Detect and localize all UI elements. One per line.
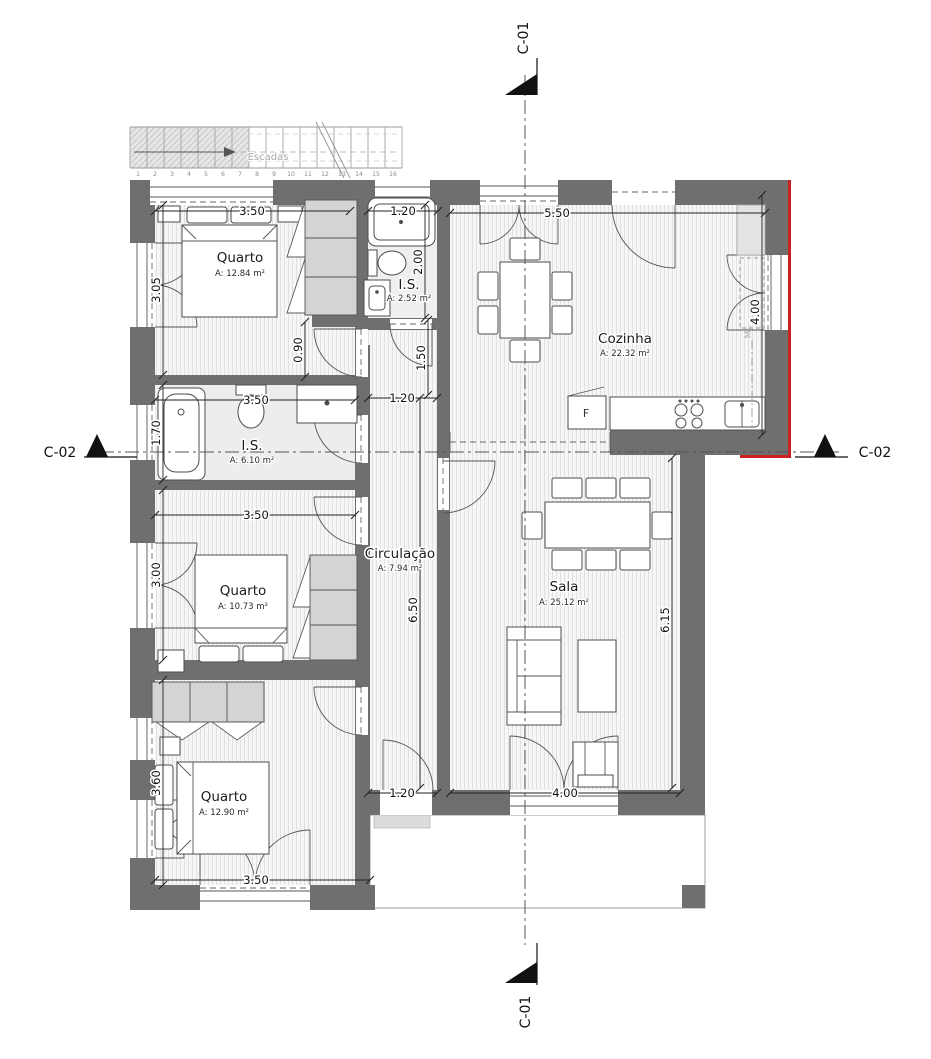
section-marker-c02-left: C-02 (44, 434, 137, 461)
wall-bed2-bed3 (155, 660, 370, 680)
dim-bed3-height: 3.60 (149, 770, 163, 796)
room-area-sala: A: 25.12 m² (539, 598, 589, 608)
room-area-quarto-3: A: 12.90 m² (199, 808, 249, 818)
dim-bed2-width: 3.50 (243, 508, 269, 522)
wall-is-bed2 (155, 480, 355, 490)
svg-text:16: 16 (389, 171, 397, 178)
dim-bed1-width: 3.50 (239, 204, 265, 218)
wall-kitchen-sala (610, 430, 705, 455)
bathtub (158, 388, 205, 480)
washbasin-is1 (297, 385, 357, 423)
svg-text:2: 2 (153, 171, 157, 178)
room-name-cozinha: Cozinha (598, 331, 652, 347)
svg-text:13: 13 (338, 171, 346, 178)
dim-is2-height: 2.00 (411, 249, 425, 275)
patio (370, 815, 705, 908)
tv-stand (573, 742, 618, 787)
window-bed3-west-upper (130, 718, 155, 760)
dim-kitchen-width: 5.50 (544, 206, 570, 220)
room-name-is-2: I.S. (398, 277, 419, 293)
dim-nook: 0.90 (291, 337, 305, 363)
entry-step (374, 815, 430, 828)
wall-bed1-is (155, 375, 355, 385)
svg-text:9: 9 (272, 171, 276, 178)
section-label-c02-right: C-02 (859, 445, 892, 461)
section-marker-c01-bottom: C-01 (505, 943, 537, 1028)
svg-text:5: 5 (204, 171, 208, 178)
toilet-is2 (368, 250, 406, 276)
section-arrow-icon (505, 74, 537, 95)
sofa (507, 627, 561, 725)
svg-text:11: 11 (304, 171, 312, 178)
dim-vestibule-height: 1.50 (414, 345, 428, 371)
patio-pillar (682, 885, 705, 908)
dim-hall-length: 6.50 (406, 597, 420, 623)
stair-break-line (316, 122, 350, 178)
dim-bed3-width: 3.50 (243, 873, 269, 887)
dim-sala-door-width: 4.00 (552, 786, 578, 800)
dim-is2-width: 1.20 (390, 204, 416, 218)
washing-machine-label: ML (744, 326, 754, 339)
svg-text:10: 10 (287, 171, 295, 178)
svg-text:6: 6 (221, 171, 225, 178)
section-arrow-icon (505, 962, 537, 983)
floor-plan-canvas: Escadas 1 2 3 4 5 6 7 8 9 10 11 12 13 14… (0, 0, 931, 1059)
side-table (578, 640, 616, 712)
wall-kitchen-south-east (705, 430, 790, 455)
section-label-c01-top: C-01 (516, 22, 532, 55)
room-name-quarto-3: Quarto (201, 789, 248, 805)
dim-vestibule-width: 1.20 (389, 391, 415, 405)
room-area-circulacao: A: 7.94 m² (378, 564, 423, 574)
kitchen-counter (610, 397, 765, 430)
dim-is1-width: 3.50 (243, 393, 269, 407)
room-area-quarto-2: A: 10.73 m² (218, 602, 268, 612)
svg-text:7: 7 (238, 171, 242, 178)
svg-text:15: 15 (372, 171, 380, 178)
dim-hall-exit-width: 1.20 (389, 786, 415, 800)
window-bed1-north (150, 180, 273, 205)
section-label-c01-bottom: C-01 (518, 996, 534, 1029)
stairs-hatched-run (130, 127, 249, 168)
room-area-is-2: A: 2.52 m² (387, 294, 432, 304)
stairs-label: Escadas (248, 152, 289, 163)
dim-sala-height: 6.15 (658, 607, 672, 633)
svg-text:8: 8 (255, 171, 259, 178)
room-name-quarto-1: Quarto (217, 250, 264, 266)
svg-text:12: 12 (321, 171, 329, 178)
dim-bed2-height: 3.00 (149, 562, 163, 588)
section-marker-c01-top: C-01 (505, 22, 537, 95)
dim-bed1-height: 3.05 (149, 277, 163, 303)
dim-kitchen-height: 4.00 (748, 299, 762, 325)
room-name-quarto-2: Quarto (220, 583, 267, 599)
svg-text:14: 14 (355, 171, 363, 178)
section-marker-c02-right: C-02 (795, 434, 891, 461)
room-name-circulacao: Circulação (365, 546, 435, 562)
dim-is1-height: 1.70 (149, 420, 163, 446)
room-name-sala: Sala (550, 579, 579, 595)
stairs: Escadas 1 2 3 4 5 6 7 8 9 10 11 12 13 14… (130, 122, 402, 178)
room-area-quarto-1: A: 12.84 m² (215, 269, 265, 279)
room-name-is-1: I.S. (241, 438, 262, 454)
section-label-c02-left: C-02 (44, 445, 77, 461)
room-area-cozinha: A: 22.32 m² (600, 349, 650, 359)
section-arrow-icon (86, 434, 108, 457)
fridge-label: F (583, 407, 589, 420)
red-accent-east (788, 180, 791, 458)
svg-text:1: 1 (136, 171, 140, 178)
stair-step-numbers: 1 2 3 4 5 6 7 8 9 10 11 12 13 14 15 16 (136, 171, 397, 178)
room-area-is-1: A: 6.10 m² (230, 456, 275, 466)
wall-east-sala (680, 440, 705, 815)
section-arrow-icon (814, 434, 836, 457)
red-accent-south (740, 455, 790, 458)
svg-text:3: 3 (170, 171, 174, 178)
floor-plan-drawing: Escadas 1 2 3 4 5 6 7 8 9 10 11 12 13 14… (0, 0, 931, 1059)
svg-text:4: 4 (187, 171, 191, 178)
